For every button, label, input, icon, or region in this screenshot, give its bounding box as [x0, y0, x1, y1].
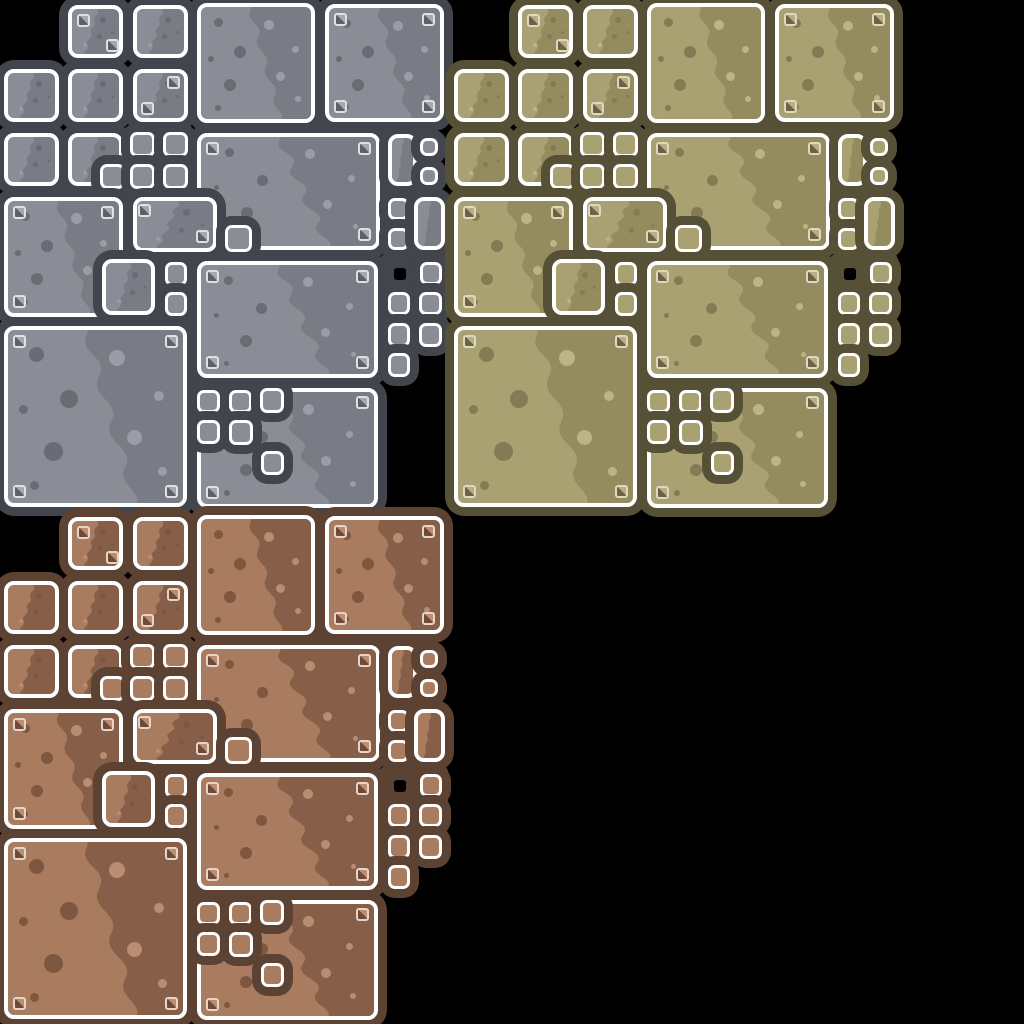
rivet-icon — [13, 295, 26, 308]
rivet-icon — [356, 868, 369, 881]
panel — [518, 69, 573, 122]
speckle-dot — [690, 335, 702, 347]
speckle-dot — [111, 607, 114, 610]
rivet-icon — [463, 335, 476, 348]
speckle-dot — [691, 207, 703, 219]
rivet-icon — [656, 356, 669, 369]
speckle-dot — [714, 20, 724, 30]
speckle-dot — [179, 228, 184, 233]
tiny-square — [420, 679, 438, 697]
speckle-dot — [561, 95, 564, 98]
speckle-dot — [15, 250, 21, 256]
speckle-dot — [323, 712, 332, 721]
tiny-square — [165, 292, 187, 316]
rivet-icon — [13, 335, 26, 348]
rivet-icon — [101, 206, 114, 219]
speckle-dot — [241, 207, 253, 219]
speckle-dot — [33, 98, 38, 103]
speckle-dot — [351, 352, 356, 357]
speckle-dot — [176, 31, 179, 34]
panel — [197, 900, 378, 1020]
panel — [133, 197, 217, 252]
tiny-square — [165, 804, 187, 828]
speckle-dot — [100, 145, 106, 151]
speckle-dot — [479, 347, 494, 362]
speckle-dot — [36, 657, 42, 663]
tiny-square — [260, 388, 284, 413]
rivet-icon — [167, 76, 180, 89]
speckle-dot — [812, 46, 824, 58]
speckle-dot — [143, 286, 146, 289]
speckle-dot — [83, 43, 87, 47]
speckle-dot — [348, 175, 355, 182]
speckle-dot — [47, 607, 50, 610]
panel — [325, 516, 444, 634]
panel — [4, 69, 59, 122]
rivet-icon — [356, 396, 369, 409]
speckle-dot — [30, 481, 39, 490]
tiny-square — [615, 262, 637, 286]
speckle-dot — [726, 72, 735, 81]
rivet-icon — [138, 204, 151, 217]
tiny-square — [197, 902, 220, 925]
speckle-dot — [612, 34, 617, 39]
speckle-dot — [753, 404, 764, 415]
speckle-dot — [533, 171, 537, 175]
rivet-icon — [463, 295, 476, 308]
speckle-dot — [127, 430, 142, 445]
rivet-icon — [356, 908, 369, 921]
tiny-square — [838, 228, 859, 250]
speckle-dot — [162, 98, 167, 103]
speckle-dot — [771, 328, 780, 337]
rivet-icon — [206, 782, 219, 795]
rivet-icon — [101, 718, 114, 731]
speckle-dot — [33, 674, 38, 679]
tiny-square — [869, 323, 892, 347]
speckle-dot — [321, 456, 331, 466]
speckle-dot — [47, 159, 50, 162]
tiny-square — [420, 650, 438, 668]
rivet-icon — [141, 614, 154, 627]
speckle-dot — [612, 98, 617, 103]
speckle-dot — [303, 277, 313, 287]
tiny-square — [838, 353, 860, 377]
tiny-square — [163, 164, 188, 189]
speckle-dot — [19, 171, 23, 175]
speckle-dot — [773, 200, 782, 209]
speckle-dot — [162, 610, 167, 615]
speckle-dot — [421, 558, 428, 565]
rivet-icon — [617, 76, 630, 89]
panel — [775, 4, 894, 122]
speckle-dot — [577, 430, 592, 445]
speckle-dot — [165, 529, 171, 535]
tiny-square — [580, 164, 605, 189]
rivet-icon — [196, 742, 209, 755]
stain-blob — [418, 201, 441, 246]
speckle-dot — [480, 481, 489, 490]
speckle-dot — [303, 916, 314, 927]
speckle-dot — [497, 159, 500, 162]
tiny-square — [197, 390, 220, 413]
tiny-square — [420, 167, 438, 185]
tiny-square — [165, 774, 187, 798]
speckle-dot — [256, 815, 267, 826]
speckle-dot — [626, 95, 629, 98]
speckle-dot — [497, 95, 500, 98]
speckle-dot — [100, 81, 106, 87]
rivet-icon — [206, 486, 219, 499]
rivet-icon — [106, 39, 119, 52]
speckle-dot — [111, 95, 114, 98]
speckle-dot — [802, 79, 814, 91]
speckle-dot — [606, 237, 610, 241]
speckle-dot — [593, 286, 596, 289]
speckle-dot — [100, 593, 106, 599]
rivet-icon — [615, 485, 628, 498]
tiny-square — [261, 963, 284, 987]
speckle-dot — [100, 657, 106, 663]
speckle-dot — [684, 46, 696, 58]
backing-hole — [394, 780, 406, 792]
speckle-dot — [240, 464, 252, 476]
speckle-dot — [33, 162, 38, 167]
rivet-icon — [167, 588, 180, 601]
tiny-square — [420, 138, 438, 156]
speckle-dot — [483, 162, 488, 167]
speckle-dot — [97, 546, 102, 551]
tiny-square — [163, 132, 188, 157]
panel — [4, 326, 187, 507]
speckle-dot — [162, 34, 167, 39]
tiny-square — [388, 740, 409, 762]
tiny-square — [100, 676, 125, 701]
speckle-dot — [132, 784, 138, 790]
panel — [102, 771, 155, 827]
speckle-dot — [393, 533, 403, 543]
speckle-dot — [60, 902, 78, 920]
speckle-dot — [303, 404, 314, 415]
tiny-square — [388, 323, 410, 347]
speckle-dot — [664, 185, 669, 190]
speckle-dot — [36, 145, 42, 151]
speckle-dot — [224, 591, 236, 603]
speckle-dot — [83, 778, 92, 787]
rivet-icon — [13, 807, 26, 820]
speckle-dot — [234, 46, 246, 58]
speckle-dot — [651, 224, 654, 227]
panel — [583, 69, 638, 122]
speckle-dot — [19, 917, 28, 926]
tiny-square — [197, 420, 220, 444]
speckle-dot — [755, 149, 765, 159]
speckle-dot — [215, 617, 221, 623]
rivet-icon — [206, 142, 219, 155]
rivet-icon — [206, 868, 219, 881]
rivet-icon — [206, 654, 219, 667]
speckle-dot — [97, 98, 102, 103]
speckle-dot — [796, 303, 803, 310]
speckle-dot — [674, 361, 679, 366]
rivet-icon — [106, 551, 119, 564]
speckle-dot — [753, 277, 763, 287]
speckle-dot — [127, 942, 142, 957]
speckle-dot — [550, 240, 557, 247]
speckle-dot — [276, 72, 285, 81]
speckle-dot — [745, 96, 751, 102]
panel — [197, 3, 315, 123]
rivet-icon — [165, 997, 178, 1010]
tiny-square — [225, 225, 252, 252]
speckle-dot — [346, 943, 353, 950]
rivet-icon — [165, 847, 178, 860]
panel — [133, 5, 188, 58]
speckle-dot — [240, 847, 252, 859]
speckle-dot — [83, 266, 92, 275]
speckle-dot — [214, 185, 219, 190]
speckle-dot — [256, 431, 268, 443]
panel — [454, 133, 509, 186]
speckle-dot — [97, 34, 102, 39]
panel — [647, 261, 828, 378]
panel — [388, 646, 417, 698]
rivet-icon — [591, 102, 604, 115]
rivet-icon — [551, 206, 564, 219]
speckle-dot — [257, 687, 268, 698]
speckle-dot — [36, 593, 42, 599]
speckle-dot — [19, 405, 28, 414]
panel — [133, 517, 188, 570]
speckle-dot — [117, 299, 121, 303]
speckle-dot — [353, 736, 358, 741]
panel — [454, 69, 509, 122]
rivet-icon — [422, 612, 435, 625]
tiny-square — [419, 804, 442, 827]
tiny-square — [870, 262, 892, 285]
speckle-dot — [305, 149, 315, 159]
rivet-icon — [806, 270, 819, 283]
speckle-dot — [633, 209, 640, 216]
panel — [133, 69, 188, 122]
speckle-dot — [15, 762, 21, 768]
speckle-dot — [29, 859, 44, 874]
speckle-dot — [111, 31, 114, 34]
rivet-icon — [872, 100, 885, 113]
speckle-dot — [109, 350, 125, 366]
tiny-square — [100, 164, 125, 189]
panel — [414, 709, 445, 762]
speckle-dot — [674, 490, 680, 496]
speckle-dot — [183, 209, 190, 216]
speckle-dot — [292, 46, 299, 53]
speckle-dot — [404, 584, 413, 593]
speckle-dot — [176, 543, 179, 546]
speckle-dot — [148, 555, 152, 559]
panel — [4, 838, 187, 1019]
speckle-dot — [615, 17, 621, 23]
speckle-dot — [214, 825, 219, 830]
rivet-icon — [784, 100, 797, 113]
tiny-square — [870, 138, 888, 156]
tiny-square — [615, 292, 637, 316]
speckle-dot — [264, 532, 274, 542]
speckle-dot — [154, 391, 164, 401]
tiny-square — [550, 164, 575, 189]
panel — [4, 133, 59, 186]
speckle-dot — [469, 107, 473, 111]
rivet-icon — [806, 396, 819, 409]
speckle-dot — [83, 171, 87, 175]
speckle-dot — [224, 79, 236, 91]
speckle-dot — [100, 752, 107, 759]
speckle-dot — [486, 81, 492, 87]
rivet-icon — [556, 39, 569, 52]
speckle-dot — [321, 968, 331, 978]
speckle-dot — [201, 224, 204, 227]
rivet-icon — [13, 206, 26, 219]
speckle-dot — [240, 335, 252, 347]
rivet-icon — [165, 335, 178, 348]
tiny-square — [838, 198, 859, 220]
speckle-dot — [871, 46, 878, 53]
speckle-dot — [225, 660, 234, 669]
speckle-dot — [234, 558, 246, 570]
speckle-dot — [214, 697, 219, 702]
speckle-dot — [29, 347, 44, 362]
tiny-square — [388, 353, 410, 377]
tiny-square — [229, 932, 253, 957]
speckle-dot — [674, 79, 686, 91]
speckle-dot — [494, 442, 513, 461]
tiny-square — [130, 644, 155, 669]
speckle-dot — [225, 148, 234, 157]
speckle-dot — [559, 350, 575, 366]
speckle-dot — [295, 608, 301, 614]
speckle-dot — [547, 98, 552, 103]
speckle-dot — [162, 546, 167, 551]
speckle-dot — [533, 107, 537, 111]
speckle-dot — [608, 467, 617, 476]
speckle-dot — [707, 175, 718, 186]
speckle-dot — [224, 490, 230, 496]
rivet-icon — [141, 102, 154, 115]
rivet-icon — [872, 13, 885, 26]
panel — [4, 581, 59, 634]
panel — [133, 581, 188, 634]
speckle-dot — [130, 802, 135, 807]
tiny-square — [225, 737, 252, 764]
speckle-dot — [582, 272, 588, 278]
panel — [68, 69, 123, 122]
speckle-dot — [19, 683, 23, 687]
speckle-dot — [156, 749, 160, 753]
tiny-square — [388, 804, 410, 827]
rivet-icon — [358, 142, 371, 155]
speckle-dot — [176, 607, 179, 610]
tiny-square — [580, 132, 605, 157]
panel — [583, 5, 638, 58]
speckle-dot — [393, 21, 403, 31]
speckle-dot — [303, 789, 313, 799]
speckle-dot — [561, 31, 564, 34]
stain-blob — [418, 713, 441, 758]
speckle-dot — [346, 303, 353, 310]
tiny-square — [163, 676, 188, 701]
panel — [388, 134, 417, 186]
panel — [197, 515, 315, 635]
speckle-dot — [158, 979, 167, 988]
speckle-dot — [421, 46, 428, 53]
speckle-dot — [352, 591, 364, 603]
tiny-square — [388, 228, 409, 250]
speckle-dot — [362, 46, 374, 58]
speckle-dot — [533, 266, 542, 275]
speckle-dot — [214, 530, 223, 539]
tiny-square — [388, 710, 409, 732]
speckle-dot — [510, 390, 528, 408]
rivet-icon — [206, 270, 219, 283]
speckle-dot — [224, 1002, 230, 1008]
speckle-dot — [404, 72, 413, 81]
speckle-dot — [321, 328, 330, 337]
speckle-dot — [567, 299, 571, 303]
spritesheet-canvas — [0, 0, 1024, 1024]
speckle-dot — [486, 145, 492, 151]
panel — [838, 134, 867, 186]
rivet-icon — [206, 998, 219, 1011]
speckle-dot — [323, 200, 332, 209]
speckle-dot — [109, 862, 125, 878]
tiny-square — [420, 262, 442, 285]
rivet-icon — [196, 230, 209, 243]
speckle-dot — [742, 46, 749, 53]
tiny-square — [419, 835, 442, 859]
speckle-dot — [481, 273, 493, 285]
speckle-dot — [352, 79, 364, 91]
speckle-dot — [604, 391, 614, 401]
tiny-square — [838, 292, 860, 315]
speckle-dot — [214, 18, 223, 27]
tiny-square — [613, 132, 638, 157]
speckle-dot — [796, 431, 803, 438]
speckle-dot — [111, 159, 114, 162]
speckle-dot — [33, 610, 38, 615]
speckle-dot — [321, 840, 330, 849]
rivet-icon — [358, 740, 371, 753]
tiny-square — [675, 225, 702, 252]
speckle-dot — [143, 798, 146, 801]
speckle-dot — [550, 17, 556, 23]
tiny-square — [838, 323, 860, 347]
speckle-dot — [658, 56, 664, 62]
speckle-dot — [626, 31, 629, 34]
panel — [454, 326, 637, 507]
speckle-dot — [629, 228, 634, 233]
speckle-dot — [257, 175, 268, 186]
rivet-icon — [13, 485, 26, 498]
speckle-dot — [36, 81, 42, 87]
speckle-dot — [336, 56, 342, 62]
speckle-dot — [158, 467, 167, 476]
tiny-square — [870, 167, 888, 185]
speckle-dot — [71, 213, 82, 224]
speckle-dot — [550, 145, 556, 151]
tiny-square — [163, 644, 188, 669]
speckle-dot — [165, 17, 171, 23]
rivet-icon — [13, 997, 26, 1010]
speckle-dot — [801, 352, 806, 357]
